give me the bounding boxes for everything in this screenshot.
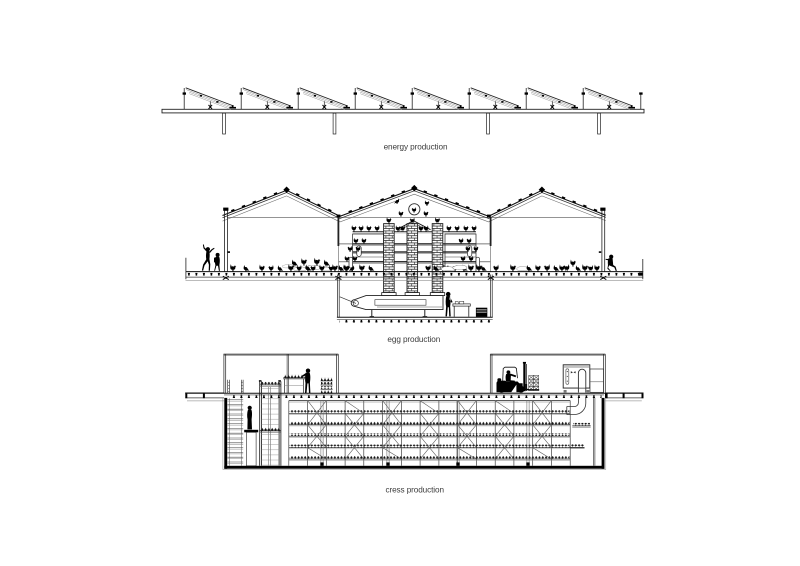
svg-text:egg production: egg production <box>387 335 440 344</box>
svg-text:cress production: cress production <box>385 486 444 495</box>
svg-text:energy production: energy production <box>384 142 448 151</box>
